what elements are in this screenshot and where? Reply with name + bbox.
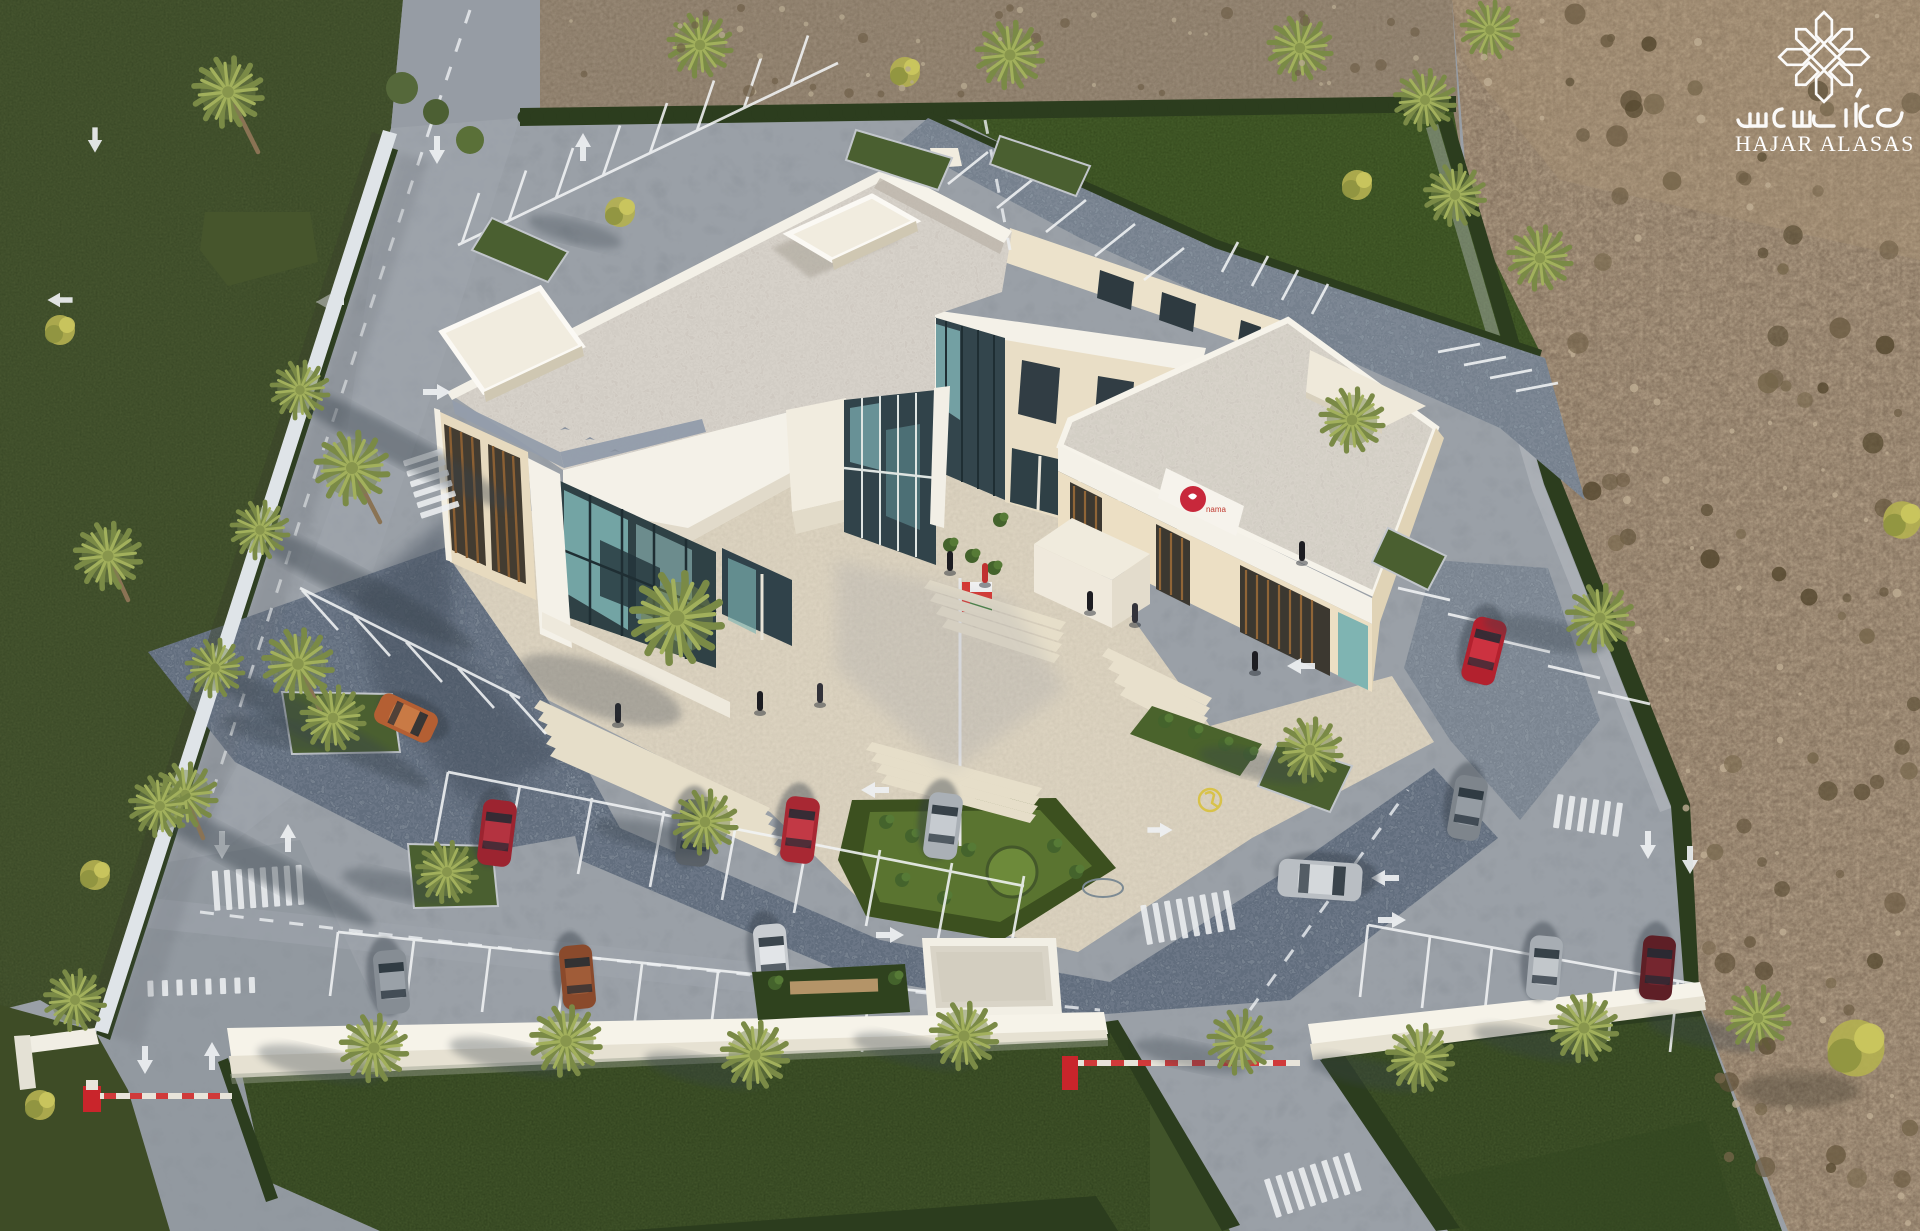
svg-text:HAJAR ALASAS: HAJAR ALASAS: [1735, 131, 1915, 156]
svg-text:nama: nama: [1206, 505, 1227, 514]
